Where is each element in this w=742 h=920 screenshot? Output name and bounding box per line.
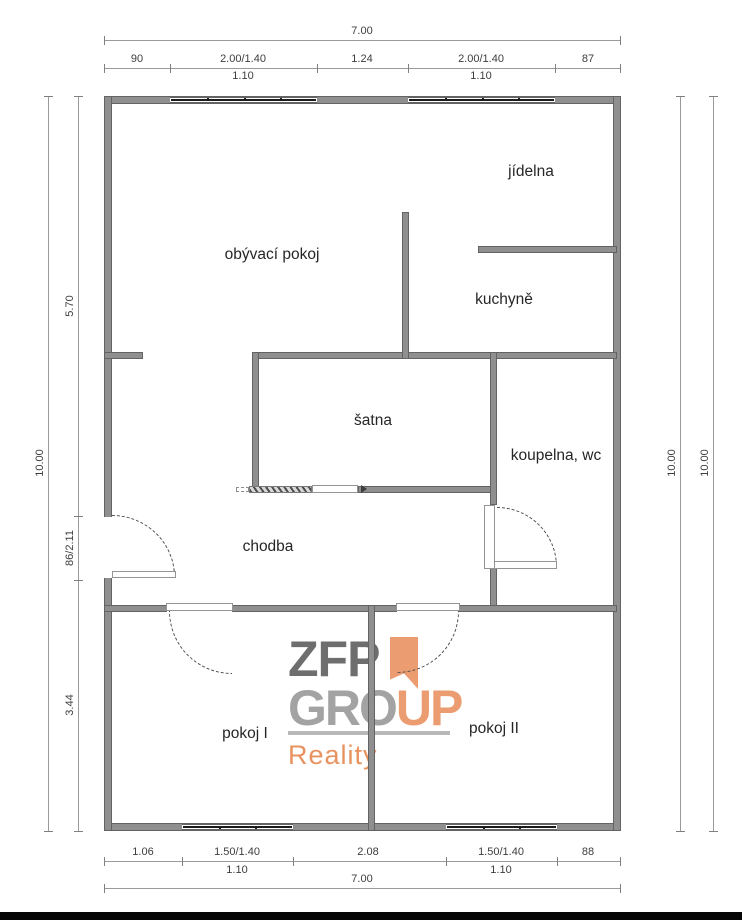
dim-tick	[676, 96, 685, 97]
logo-group-gray: GRO	[288, 680, 396, 736]
sliding-door-pocket	[249, 486, 312, 493]
wall-closet-bottom	[358, 486, 497, 493]
dim-tick	[170, 64, 171, 73]
dim-tick	[293, 857, 294, 866]
dim-bottom-sub-2: 1.10	[490, 864, 511, 876]
entrance-door-arc	[112, 515, 175, 577]
dim-line-right-inner	[680, 96, 681, 831]
dim-left-seg-2: 86/2.11	[64, 530, 76, 566]
room-label-dining: jídelna	[508, 163, 554, 181]
room-label-bathroom: koupelna, wc	[511, 447, 601, 465]
window-bottom-right	[446, 823, 557, 831]
logo-reality-text: Reality	[288, 740, 378, 771]
logo-group-orange: UP	[396, 680, 461, 736]
sliding-door-arrow-icon	[361, 485, 367, 493]
dim-top-seg-4: 2.00/1.40	[458, 53, 504, 65]
sliding-door-leaf	[312, 485, 358, 493]
sliding-door-track	[236, 487, 249, 492]
dim-tick	[104, 36, 105, 45]
dim-tick	[74, 516, 83, 517]
dim-top-sub-2: 1.10	[470, 70, 491, 82]
dim-bottom-seg-4: 1.50/1.40	[478, 846, 524, 858]
logo-zfp-text: ZFP	[288, 634, 379, 684]
window-mullion	[519, 826, 521, 829]
dim-bottom-seg-1: 1.06	[132, 846, 153, 858]
dim-tick	[104, 884, 105, 893]
window-mullion	[207, 98, 209, 101]
wall-hall-bottom-c	[459, 605, 617, 612]
window-mullion	[482, 98, 484, 101]
dim-tick	[104, 64, 105, 73]
dim-tick	[104, 857, 105, 866]
room-label-kitchen: kuchyně	[475, 291, 533, 309]
dim-tick	[182, 857, 183, 866]
room-label-room1: pokoj I	[222, 725, 268, 743]
wall-dining-kitchen	[478, 246, 617, 253]
dim-line-top-total	[104, 40, 621, 41]
room-label-living: obývací pokoj	[225, 246, 320, 264]
wall-room-divider	[368, 605, 375, 831]
dim-line-bottom-total	[104, 888, 621, 889]
dim-right-total-2: 10.00	[699, 449, 711, 477]
room2-door-arc	[397, 611, 459, 673]
dim-bottom-total: 7.00	[351, 873, 372, 885]
dim-tick	[44, 96, 53, 97]
dim-tick	[446, 857, 447, 866]
dim-tick	[44, 831, 53, 832]
bathroom-door-arc	[497, 507, 557, 567]
dim-tick	[676, 831, 685, 832]
window-mullion	[445, 98, 447, 101]
wall-outer-right	[613, 96, 621, 831]
dim-tick	[74, 831, 83, 832]
dim-tick	[74, 580, 83, 581]
dim-left-seg-1: 5.70	[64, 295, 76, 316]
window-glass-line	[447, 826, 556, 828]
dim-top-sub-1: 1.10	[232, 70, 253, 82]
dim-line-right-outer	[713, 96, 714, 831]
dim-top-seg-3: 1.24	[351, 53, 372, 65]
dim-top-seg-2: 2.00/1.40	[220, 53, 266, 65]
room2-door-leaf	[396, 603, 460, 611]
window-bottom-left	[182, 823, 293, 831]
wall-kitchen-left	[402, 212, 409, 359]
dim-right-total-1: 10.00	[666, 449, 678, 477]
dim-tick	[74, 96, 83, 97]
dim-tick	[709, 96, 718, 97]
dim-line-left-segments	[78, 96, 79, 831]
dim-line-top-segments	[104, 68, 621, 69]
bathroom-door-frame	[484, 505, 495, 569]
room1-door-leaf	[166, 603, 233, 611]
dim-top-total: 7.00	[351, 25, 372, 37]
window-mullion	[255, 826, 257, 829]
window-mullion	[483, 826, 485, 829]
wall-closet-left	[252, 352, 259, 493]
wall-outer-left	[104, 96, 112, 831]
window-mullion	[244, 98, 246, 101]
dim-bottom-sub-1: 1.10	[226, 864, 247, 876]
dim-bottom-seg-2: 1.50/1.40	[214, 846, 260, 858]
dim-bottom-seg-3: 2.08	[357, 846, 378, 858]
wall-closet-bath-top	[252, 352, 617, 359]
dim-left-total: 10.00	[34, 449, 46, 477]
wall-bathroom-left-upper	[490, 352, 497, 505]
room-label-hallway: chodba	[243, 538, 294, 556]
dim-bottom-seg-5: 88	[582, 846, 594, 858]
wall-living-stub	[104, 352, 143, 359]
room-label-room2: pokoj II	[469, 720, 519, 738]
window-mullion	[219, 826, 221, 829]
entrance-door-opening	[104, 517, 112, 578]
dim-tick	[557, 857, 558, 866]
dim-tick	[620, 36, 621, 45]
room-label-closet: šatna	[354, 412, 392, 430]
wall-hall-bottom-a	[104, 605, 167, 612]
dim-tick	[408, 64, 409, 73]
floor-plan: ZFP GROUP Reality	[0, 0, 742, 920]
dim-top-seg-5: 87	[582, 53, 594, 65]
window-top-left	[170, 96, 317, 104]
dim-tick	[317, 64, 318, 73]
bottom-black-bar	[0, 912, 742, 920]
dim-line-left-total	[48, 96, 49, 831]
window-top-right	[408, 96, 555, 104]
dim-tick	[620, 64, 621, 73]
window-mullion	[518, 98, 520, 101]
bathroom-door-leaf	[494, 561, 557, 569]
dim-tick	[555, 64, 556, 73]
window-glass-line	[183, 826, 292, 828]
dim-tick	[709, 831, 718, 832]
dim-tick	[620, 884, 621, 893]
dim-tick	[620, 857, 621, 866]
dim-top-seg-1: 90	[131, 53, 143, 65]
window-mullion	[280, 98, 282, 101]
entrance-door-leaf	[112, 571, 176, 578]
dim-left-seg-3: 3.44	[64, 694, 76, 715]
room1-door-arc	[169, 611, 232, 674]
